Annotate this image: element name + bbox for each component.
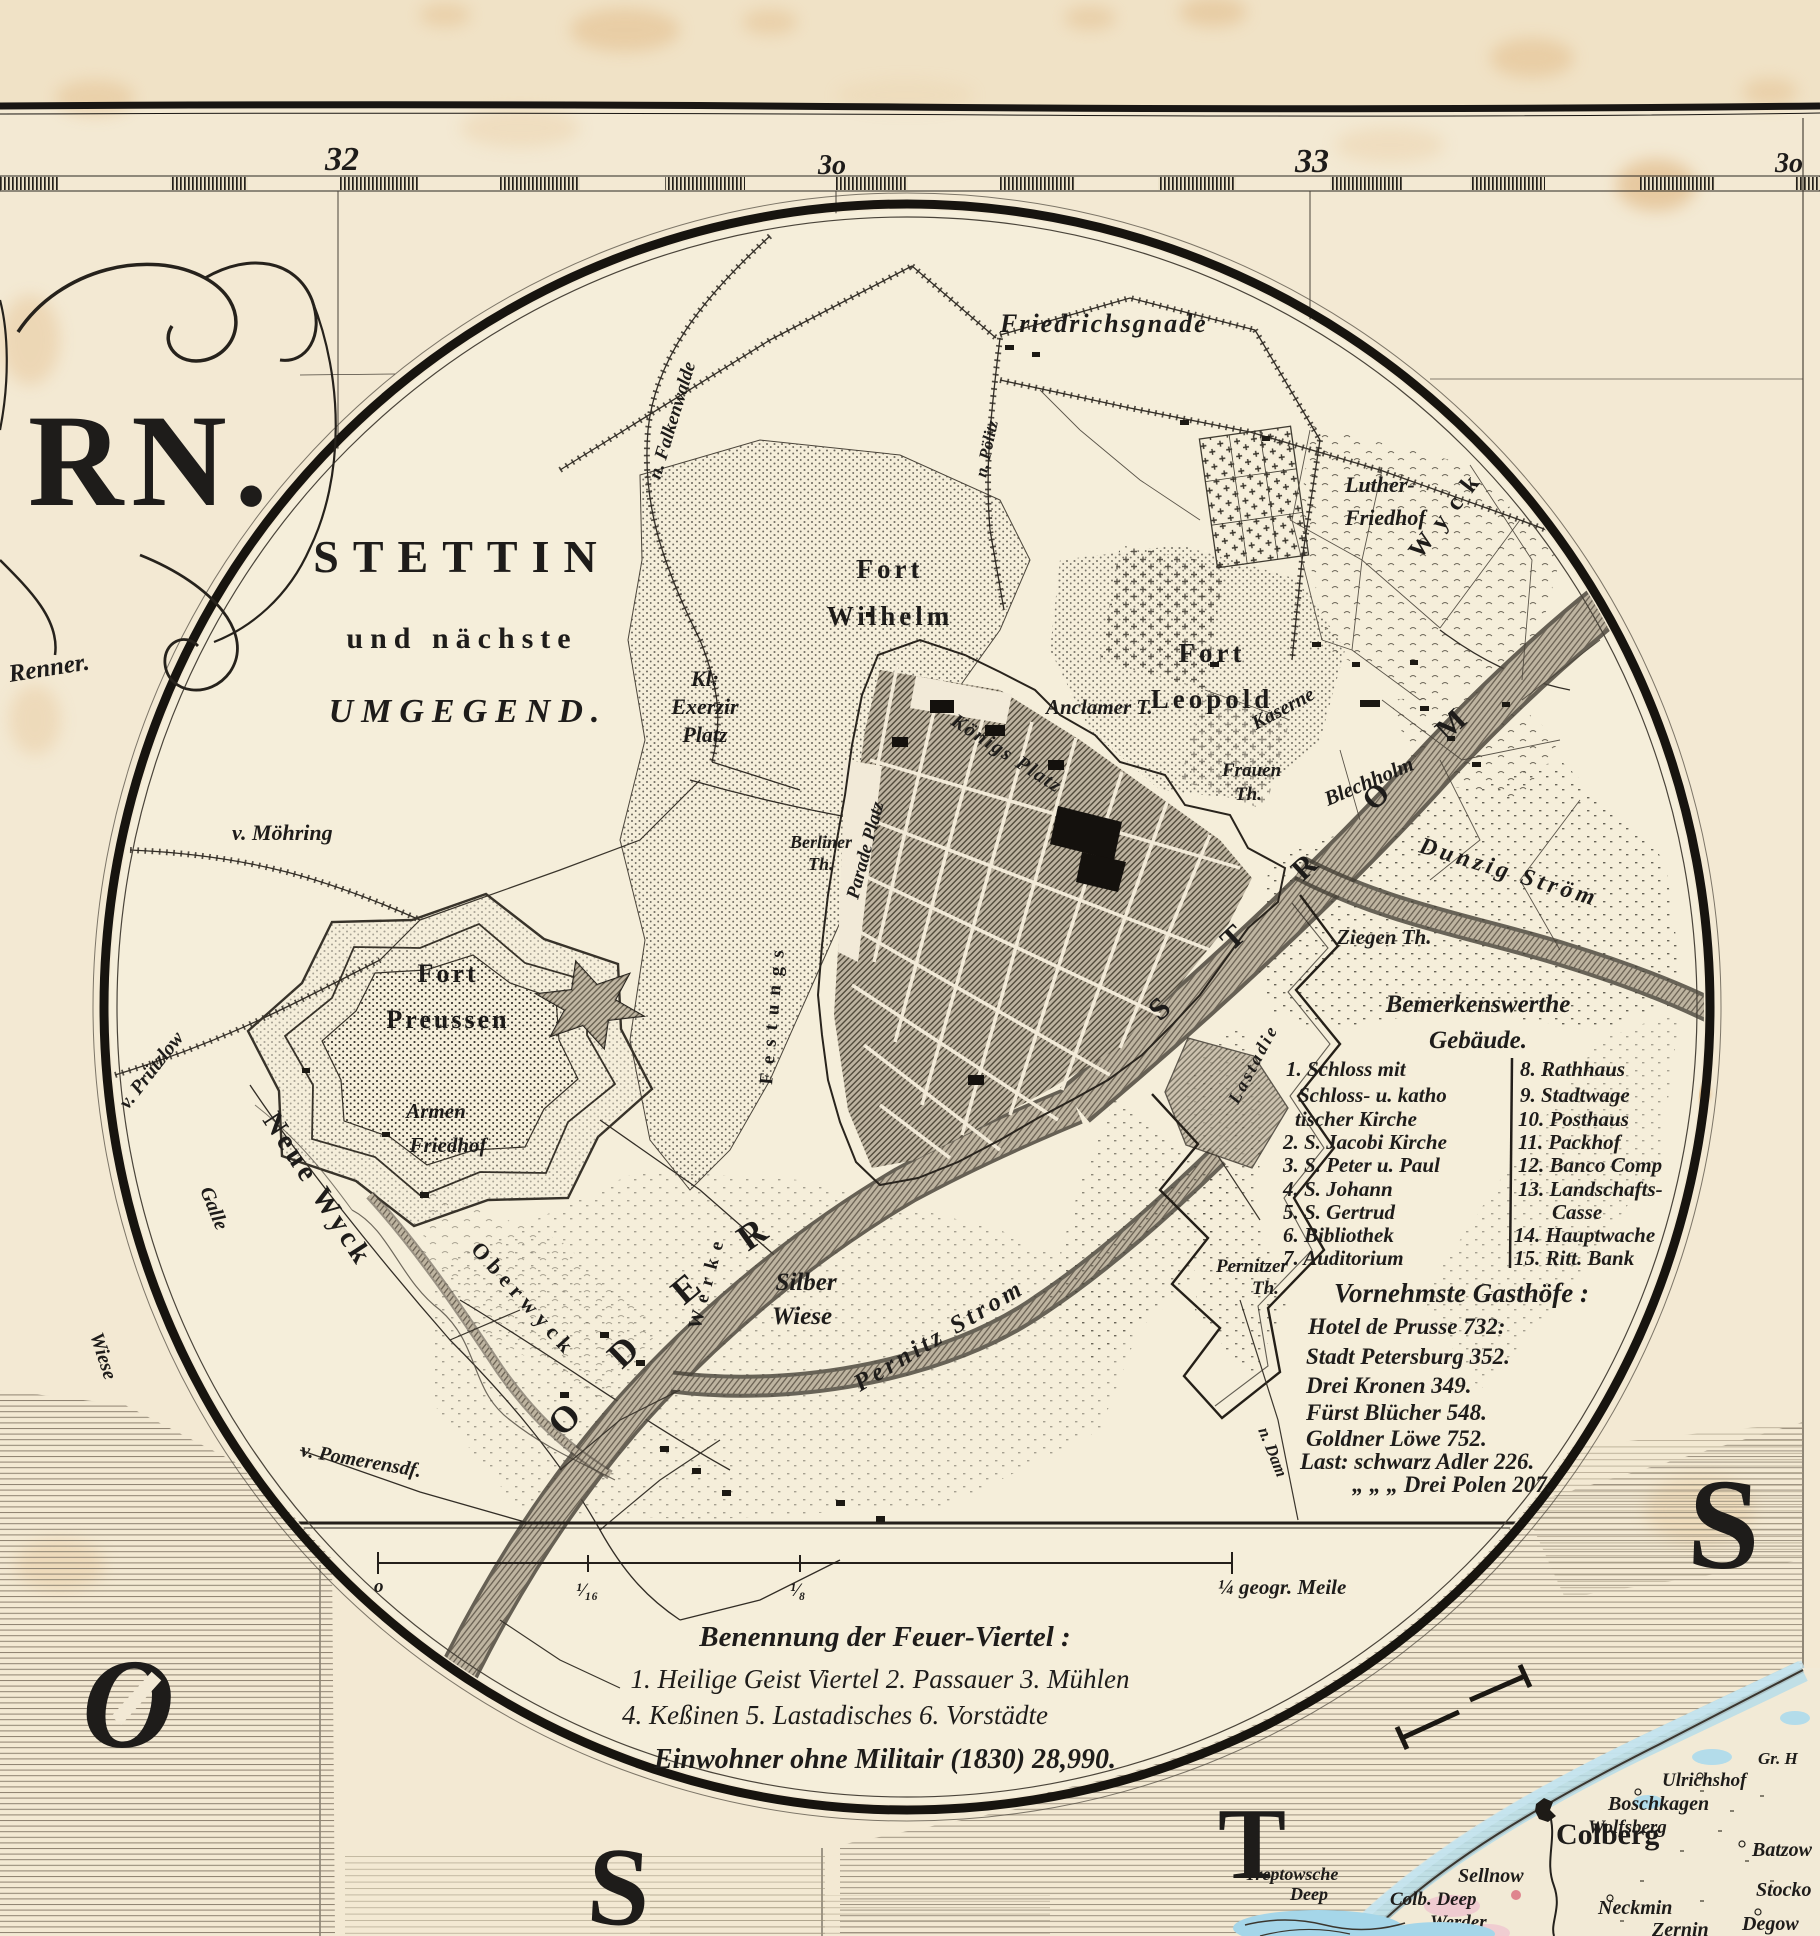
svg-text:Platz: Platz [681,722,728,747]
svg-text:Anclamer T.: Anclamer T. [1044,695,1153,719]
svg-text:Stadt Petersburg 352.: Stadt Petersburg 352. [1306,1344,1510,1369]
svg-text:Einwohner ohne Militair (1830): Einwohner ohne Militair (1830) 28,990. [653,1744,1116,1775]
svg-text:Armen: Armen [404,1099,466,1123]
svg-text:S: S [584,1824,653,1936]
svg-text:6. Bibliothek: 6. Bibliothek [1283,1223,1394,1247]
svg-text:Colb. Deep: Colb. Deep [1390,1889,1477,1910]
svg-text:S: S [1685,1452,1762,1598]
svg-text:Berliner: Berliner [789,832,853,852]
svg-text:Stocko: Stocko [1756,1879,1812,1901]
svg-text:Kl:: Kl: [690,666,719,691]
svg-text:Th.: Th. [808,854,834,874]
svg-text:v. Möhring: v. Möhring [232,820,333,845]
svg-text:Bemerkenswerthe: Bemerkenswerthe [1385,991,1571,1018]
svg-text:Gebäude.: Gebäude. [1429,1027,1527,1054]
svg-text:14. Hauptwache: 14. Hauptwache [1514,1223,1655,1247]
svg-text:Gr. H: Gr. H [1758,1749,1798,1768]
svg-text:Silber: Silber [775,1269,836,1296]
svg-text:5. S. Gertrud: 5. S. Gertrud [1283,1200,1396,1224]
svg-text:Zernin: Zernin [1651,1919,1709,1936]
svg-text:Vornehmste Gasthöfe :: Vornehmste Gasthöfe : [1334,1278,1589,1308]
svg-text:Friedhof: Friedhof [1344,505,1428,530]
svg-text:Wiese: Wiese [772,1303,832,1330]
svg-text:Preussen: Preussen [386,1005,509,1034]
svg-text:Ziegen Th.: Ziegen Th. [1336,925,1432,949]
svg-text:9. Stadtwage: 9. Stadtwage [1520,1083,1630,1107]
svg-text:Last: schwarz Adler 226.: Last: schwarz Adler 226. [1299,1449,1534,1474]
svg-text:Exerzir: Exerzir [670,694,739,719]
svg-text:Treptowsche: Treptowsche [1245,1864,1338,1884]
svg-text:Benennung der Feuer-Viertel :: Benennung der Feuer-Viertel : [698,1621,1070,1653]
svg-text:11. Packhof: 11. Packhof [1518,1130,1623,1154]
svg-text:¼ geogr. Meile: ¼ geogr. Meile [1218,1575,1346,1599]
svg-text:3o: 3o [817,150,846,181]
svg-text:8. Rathhaus: 8. Rathhaus [1520,1057,1625,1081]
svg-text:Th.: Th. [1235,784,1262,805]
svg-text:Fort: Fort [1179,638,1246,668]
svg-text:7. Auditorium: 7. Auditorium [1283,1246,1404,1270]
svg-text:Fürst Blücher 548.: Fürst Blücher 548. [1305,1400,1487,1425]
svg-text:Luther-: Luther- [1344,472,1415,497]
svg-text:4. S. Johann: 4. S. Johann [1282,1177,1393,1201]
svg-text:Goldner Löwe 752.: Goldner Löwe 752. [1306,1426,1487,1451]
svg-text:¹⁄₈: ¹⁄₈ [790,1580,806,1601]
svg-text:Colberg: Colberg [1556,1818,1659,1851]
svg-text:Fort: Fort [857,554,924,584]
svg-text:13. Landschafts-: 13. Landschafts- [1518,1177,1663,1201]
svg-text:Drei Kronen 349.: Drei Kronen 349. [1305,1373,1472,1398]
svg-text:Degow: Degow [1741,1913,1799,1935]
svg-text:STETTIN: STETTIN [313,531,610,582]
svg-text:32: 32 [324,141,359,178]
svg-text:15. Ritt. Bank: 15. Ritt. Bank [1514,1246,1635,1270]
svg-text:Friedhof: Friedhof [408,1133,488,1157]
svg-text:10. Posthaus: 10. Posthaus [1518,1107,1629,1131]
svg-text:tischer Kirche: tischer Kirche [1295,1107,1417,1131]
svg-text:Boschkagen: Boschkagen [1607,1793,1709,1815]
svg-text:Hotel de Prusse 732:: Hotel de Prusse 732: [1307,1314,1505,1339]
svg-text:Leopold: Leopold [1151,684,1274,714]
svg-text:3o: 3o [1774,148,1803,179]
svg-text:o: o [374,1576,384,1597]
svg-text:Ulrichshof: Ulrichshof [1662,1770,1748,1791]
svg-text:T: T [1218,1788,1286,1901]
svg-text:12. Banco Comp: 12. Banco Comp [1518,1153,1662,1177]
svg-text:2. S. Jacobi Kirche: 2. S. Jacobi Kirche [1282,1130,1447,1154]
svg-text:Frauen: Frauen [1221,760,1281,781]
svg-text:Wilhelm: Wilhelm [827,601,954,631]
svg-text:Friedrichsgnade: Friedrichsgnade [999,309,1208,338]
svg-text:4. Keßinen 5. Lastadisches 6: 4. Keßinen 5. Lastadisches 6. Vorstädte [622,1700,1048,1730]
svg-text:RN.: RN. [28,387,276,534]
svg-text:Batzow: Batzow [1751,1839,1813,1861]
svg-text:Th.: Th. [1252,1278,1279,1299]
svg-text:Schloss- u. katho: Schloss- u. katho [1298,1083,1447,1107]
svg-text:Pernitzer: Pernitzer [1215,1256,1288,1277]
svg-text:Deep: Deep [1289,1884,1328,1904]
svg-text:¹⁄₁₆: ¹⁄₁₆ [576,1580,598,1601]
svg-text:Fort: Fort [417,959,478,988]
svg-text:Sellnow: Sellnow [1458,1865,1524,1887]
svg-text:1. Heilige Geist Viertel 2. P: 1. Heilige Geist Viertel 2. Passauer 3. … [631,1664,1130,1694]
svg-text:3. S. Peter u. Paul: 3. S. Peter u. Paul [1282,1153,1440,1177]
svg-text:1. Schloss mit: 1. Schloss mit [1286,1057,1407,1081]
svg-text:Casse: Casse [1552,1200,1602,1224]
svg-text:UMGEGEND.: UMGEGEND. [329,693,608,730]
svg-text:und nächste: und nächste [346,622,577,655]
svg-text:„ „ „ Drei Polen 207.: „ „ „ Drei Polen 207. [1352,1472,1553,1497]
svg-text:33: 33 [1294,143,1329,180]
